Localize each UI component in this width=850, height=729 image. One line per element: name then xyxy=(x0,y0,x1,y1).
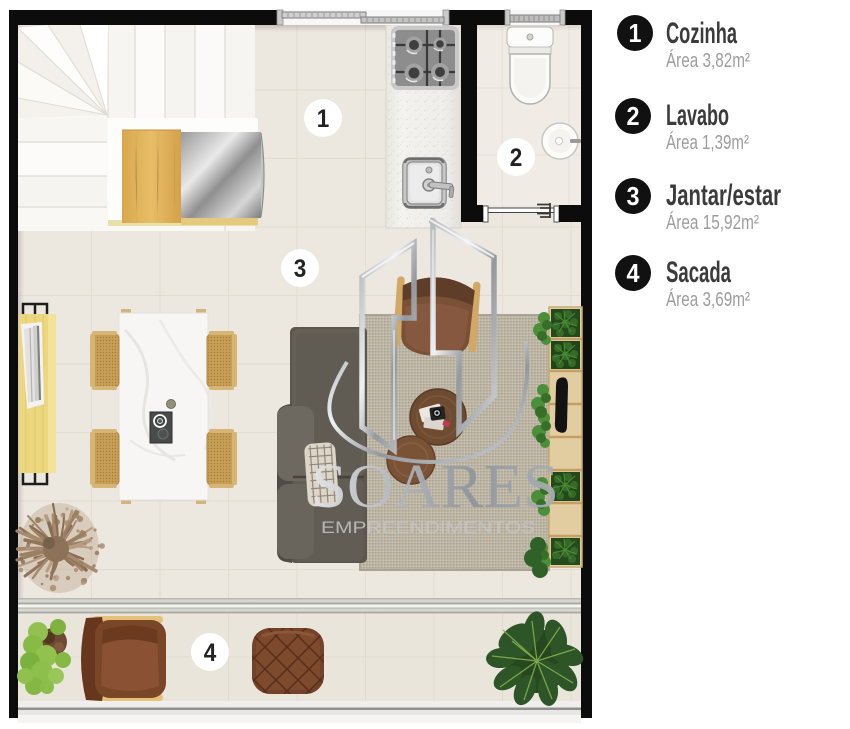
svg-text:Área 1,39m²: Área 1,39m² xyxy=(666,131,749,154)
svg-text:4: 4 xyxy=(627,258,640,288)
svg-text:1: 1 xyxy=(629,18,642,48)
svg-text:4: 4 xyxy=(204,639,217,667)
svg-text:3: 3 xyxy=(627,181,640,211)
svg-text:Área 3,69m²: Área 3,69m² xyxy=(666,288,750,311)
svg-text:3: 3 xyxy=(294,255,307,283)
svg-text:Jantar/estar: Jantar/estar xyxy=(666,179,781,212)
svg-text:Área 15,92m²: Área 15,92m² xyxy=(666,211,759,234)
svg-text:Lavabo: Lavabo xyxy=(666,99,729,132)
svg-text:2: 2 xyxy=(627,101,640,131)
svg-text:EMPREENDIMENTOS: EMPREENDIMENTOS xyxy=(321,518,535,537)
svg-text:2: 2 xyxy=(510,144,523,172)
svg-text:Cozinha: Cozinha xyxy=(666,17,737,50)
svg-text:SOARES: SOARES xyxy=(311,453,559,521)
svg-text:Sacada: Sacada xyxy=(666,256,731,289)
svg-text:1: 1 xyxy=(317,105,330,133)
svg-text:Área 3,82m²: Área 3,82m² xyxy=(666,49,750,72)
